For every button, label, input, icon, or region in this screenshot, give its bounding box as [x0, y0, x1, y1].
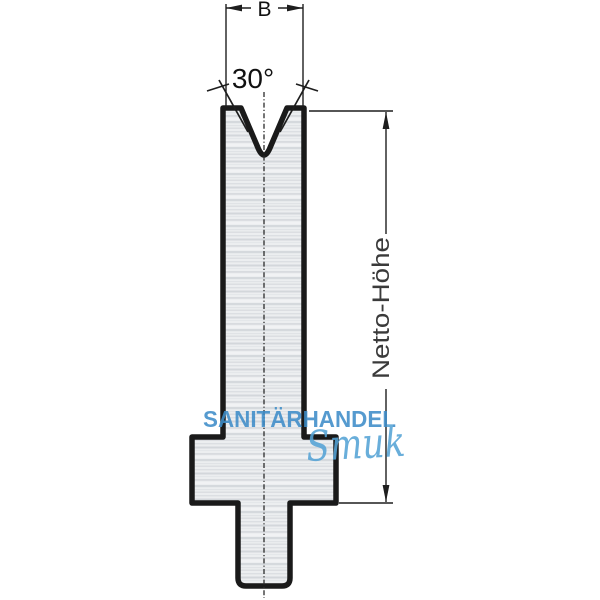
width-dimension-label: B [257, 0, 271, 21]
angle-dimension-label: 30° [232, 63, 274, 94]
die-technical-drawing: B 30° Netto-Höhe SANITÄRHANDEL Smuk [0, 0, 600, 600]
product-drawing-image: B 30° Netto-Höhe SANITÄRHANDEL Smuk [0, 0, 600, 600]
height-dimension-label: Netto-Höhe [368, 237, 395, 379]
watermark-brand-script: Smuk [305, 417, 406, 471]
